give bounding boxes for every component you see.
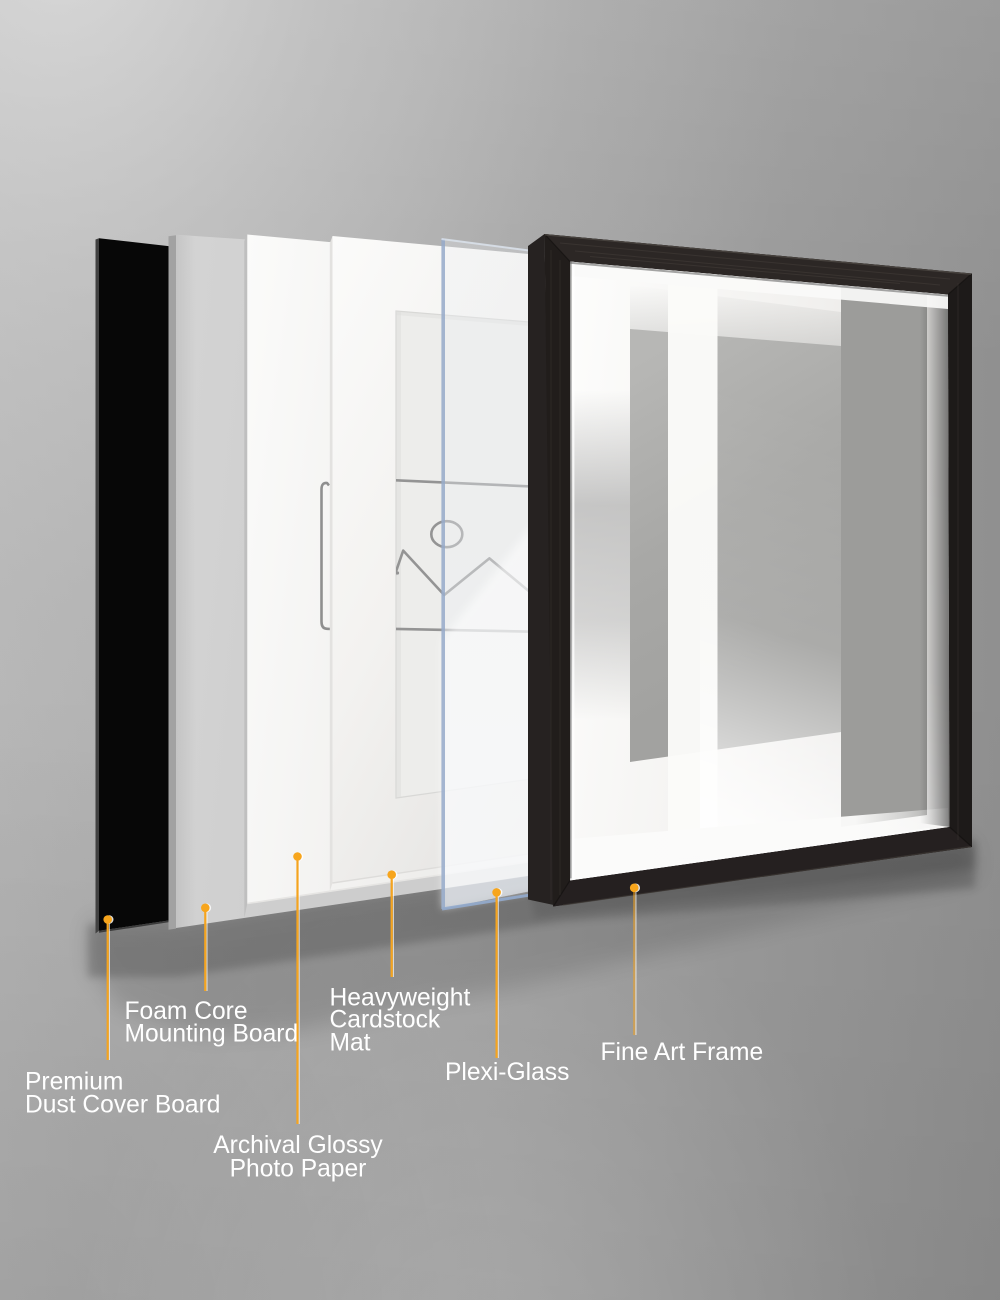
svg-text:Dust Cover Board: Dust Cover Board [25, 1092, 220, 1119]
svg-text:Fine Art Frame: Fine Art Frame [601, 1039, 764, 1066]
svg-text:Plexi-Glass: Plexi-Glass [445, 1059, 569, 1086]
svg-text:Mat: Mat [330, 1030, 371, 1057]
svg-text:Photo Paper: Photo Paper [230, 1156, 367, 1183]
svg-text:Mounting Board: Mounting Board [125, 1021, 299, 1048]
